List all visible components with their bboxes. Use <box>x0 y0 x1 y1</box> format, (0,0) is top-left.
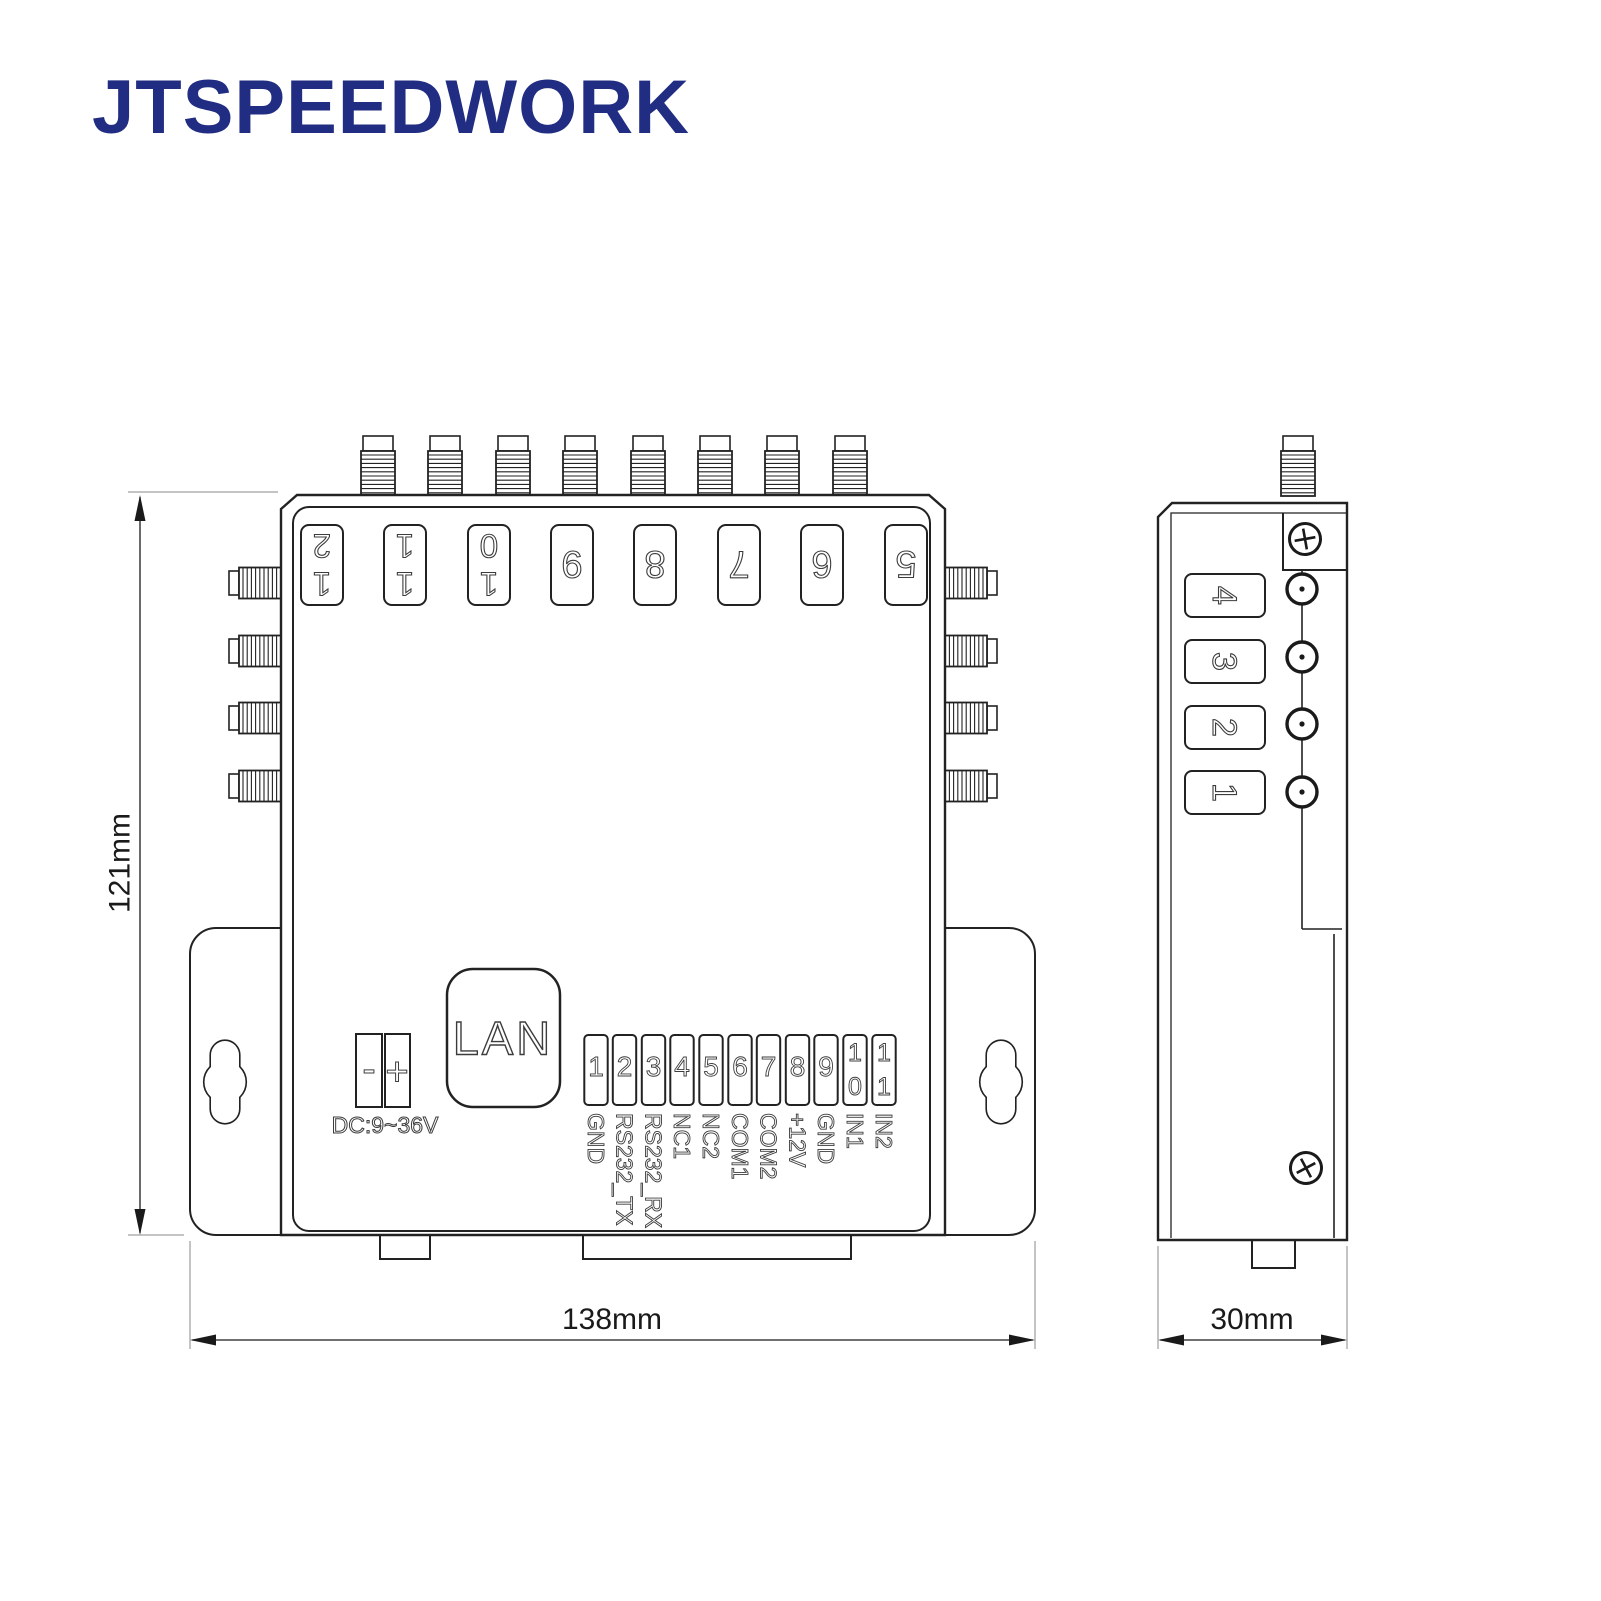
pin-label: RS232_RX <box>640 1113 666 1228</box>
bottom-tab-small <box>380 1235 430 1259</box>
antenna-connector-top-7 <box>765 436 799 496</box>
side-port-plate-1: 1 <box>1185 771 1265 814</box>
svg-text:6: 6 <box>811 543 832 585</box>
bottom-tab-large <box>583 1235 851 1259</box>
pin-label: COM1 <box>727 1113 753 1179</box>
svg-text:1: 1 <box>396 565 414 602</box>
antenna-connector-left-1 <box>229 568 281 599</box>
port-plate-10: 1 0 <box>468 525 510 605</box>
svg-text:7: 7 <box>761 1051 777 1082</box>
side-port-plate-4: 4 <box>1185 574 1265 617</box>
svg-text:1: 1 <box>877 1039 891 1067</box>
pin-label: COM2 <box>755 1113 781 1179</box>
svg-text:5: 5 <box>703 1051 719 1082</box>
side-view: 4 3 2 1 <box>1158 436 1347 1268</box>
antenna-connector-top-4 <box>563 436 597 496</box>
svg-text:1: 1 <box>480 565 498 602</box>
port-plate-5: 5 <box>885 525 927 605</box>
pin-label: IN2 <box>871 1113 897 1149</box>
pin-label: +12V <box>784 1113 810 1168</box>
antenna-connector-top-2 <box>428 436 462 496</box>
pin-label: GND <box>813 1113 839 1164</box>
lan-port: LAN <box>447 969 560 1107</box>
sma-port-side-4 <box>1287 574 1317 604</box>
antenna-connector-right-2 <box>945 636 997 667</box>
pin-label: GND <box>583 1113 609 1164</box>
svg-text:9: 9 <box>561 543 582 585</box>
antenna-connector-top-6 <box>698 436 732 496</box>
svg-text:3: 3 <box>646 1051 662 1082</box>
svg-text:2: 2 <box>313 527 331 564</box>
svg-text:0: 0 <box>480 527 498 564</box>
antenna-connector-top-1 <box>361 436 395 496</box>
svg-text:8: 8 <box>790 1051 806 1082</box>
antenna-connector-left-2 <box>229 636 281 667</box>
terminal-pin-11: 1 1 IN2 <box>871 1035 897 1149</box>
svg-text:1: 1 <box>313 565 331 602</box>
device-drawing: JTSPEEDWORK 1 2 <box>0 0 1601 1601</box>
svg-text:7: 7 <box>728 543 749 585</box>
svg-text:2: 2 <box>1205 718 1243 737</box>
svg-text:1: 1 <box>877 1073 891 1101</box>
pin-label: NC2 <box>698 1113 724 1159</box>
svg-text:8: 8 <box>644 543 665 585</box>
terminal-pin-5: 5 NC2 <box>698 1035 724 1159</box>
sma-port-side-2 <box>1287 709 1317 739</box>
antenna-connector-right-1 <box>945 568 997 599</box>
side-port-plate-2: 2 <box>1185 706 1265 749</box>
pin-label: IN1 <box>842 1113 868 1149</box>
lan-label: LAN <box>453 1011 553 1064</box>
antenna-connector-top-8 <box>833 436 867 496</box>
port-plate-11: 1 1 <box>384 525 426 605</box>
keyhole-slot-right <box>981 1041 1022 1123</box>
terminal-pin-10: 1 0 IN1 <box>842 1035 868 1149</box>
brand-logo: JTSPEEDWORK <box>92 65 690 150</box>
dc-voltage-label: DC:9~36V <box>332 1112 439 1138</box>
minus-symbol: - <box>362 1047 375 1091</box>
svg-text:1: 1 <box>396 527 414 564</box>
antenna-connector-right-3 <box>945 703 997 734</box>
svg-text:6: 6 <box>732 1051 748 1082</box>
antenna-connector-left-3 <box>229 703 281 734</box>
svg-text:1: 1 <box>1205 783 1243 802</box>
terminal-pin-4: 4 NC1 <box>669 1035 695 1159</box>
svg-text:2: 2 <box>617 1051 633 1082</box>
side-port-plate-3: 3 <box>1185 640 1265 683</box>
terminal-pin-9: 9 GND <box>813 1035 839 1164</box>
plus-symbol: + <box>385 1050 408 1094</box>
depth-dimension-label: 30mm <box>1210 1303 1293 1336</box>
antenna-connector-top-5 <box>631 436 665 496</box>
svg-text:5: 5 <box>895 543 916 585</box>
port-plate-6: 6 <box>801 525 843 605</box>
front-view: 1 2 1 1 1 0 9 8 7 <box>190 436 1035 1259</box>
dimension-width: 138mm <box>190 1241 1035 1349</box>
pin-label: NC1 <box>669 1113 695 1159</box>
port-plate-8: 8 <box>634 525 676 605</box>
svg-text:3: 3 <box>1205 652 1243 671</box>
svg-text:4: 4 <box>1205 586 1243 605</box>
height-dimension-label: 121mm <box>104 813 137 913</box>
sma-port-side-1 <box>1287 777 1317 807</box>
svg-text:9: 9 <box>818 1051 834 1082</box>
port-plate-9: 9 <box>551 525 593 605</box>
terminal-pin-3: 3 RS232_RX <box>640 1035 666 1228</box>
svg-text:4: 4 <box>674 1051 690 1082</box>
terminal-pin-8: 8 +12V <box>784 1035 810 1168</box>
svg-text:0: 0 <box>848 1073 862 1101</box>
antenna-connector-side-top <box>1281 436 1315 496</box>
svg-text:1: 1 <box>588 1051 604 1082</box>
pin-label: RS232_TX <box>611 1113 637 1226</box>
svg-text:1: 1 <box>848 1039 862 1067</box>
antenna-connector-top-3 <box>496 436 530 496</box>
antenna-connector-right-4 <box>945 771 997 802</box>
terminal-pin-1: 1 GND <box>583 1035 609 1164</box>
port-plate-12: 1 2 <box>301 525 343 605</box>
keyhole-slot-left <box>205 1041 246 1123</box>
terminal-pin-2: 2 RS232_TX <box>611 1035 637 1226</box>
side-bottom-tab <box>1252 1240 1295 1268</box>
port-plate-7: 7 <box>718 525 760 605</box>
sma-port-side-3 <box>1287 642 1317 672</box>
technical-drawing-page: JTSPEEDWORK 1 2 <box>0 0 1601 1601</box>
width-dimension-label: 138mm <box>562 1303 662 1336</box>
antenna-connector-left-4 <box>229 771 281 802</box>
